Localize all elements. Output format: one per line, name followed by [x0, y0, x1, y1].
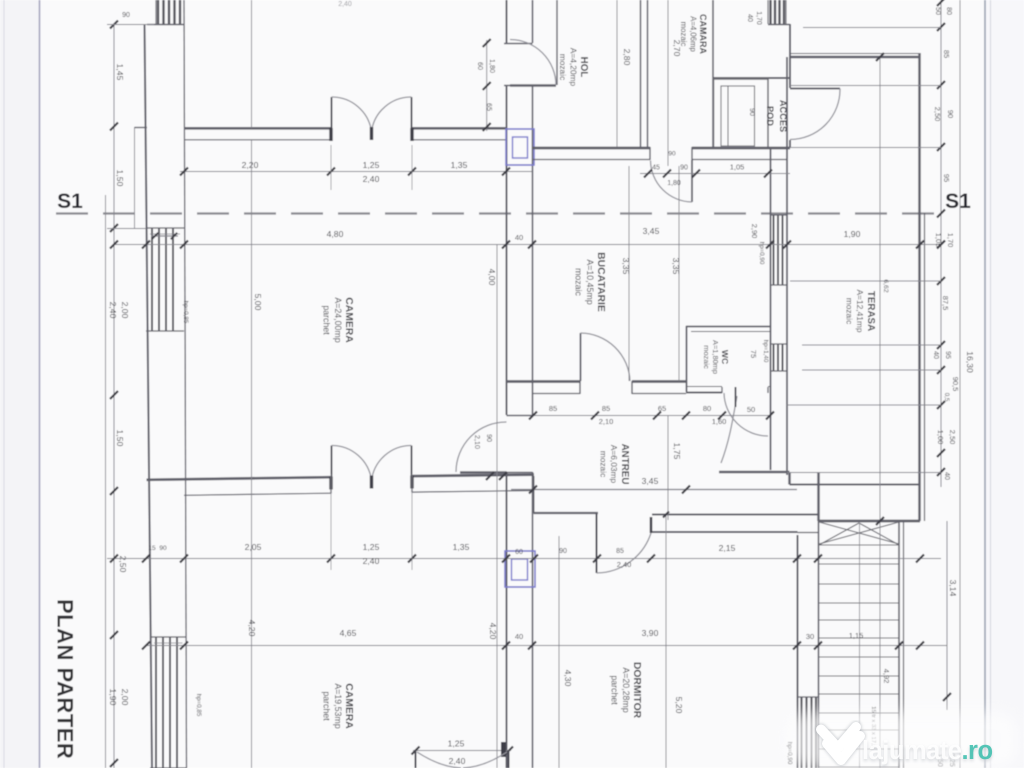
- svg-text:S1: S1: [945, 190, 971, 213]
- svg-text:POD: POD: [765, 106, 775, 126]
- svg-text:1,70: 1,70: [755, 11, 762, 25]
- svg-text:1,25: 1,25: [448, 739, 465, 749]
- svg-text:2,00: 2,00: [120, 302, 130, 319]
- svg-text:85: 85: [602, 404, 610, 413]
- svg-text:ANTREU: ANTREU: [619, 444, 630, 485]
- svg-text:2,40: 2,40: [617, 560, 632, 569]
- svg-text:1,90: 1,90: [844, 229, 861, 239]
- svg-text:A=6,03mp: A=6,03mp: [609, 445, 619, 484]
- svg-text:90: 90: [485, 434, 492, 442]
- svg-text:BUCATARIE: BUCATARIE: [595, 252, 606, 312]
- svg-text:WC: WC: [720, 350, 730, 364]
- svg-text:2,50: 2,50: [933, 107, 942, 122]
- svg-text:2,40: 2,40: [108, 302, 118, 319]
- svg-text:30: 30: [806, 632, 814, 641]
- svg-text:A=1,80mp: A=1,80mp: [711, 340, 720, 374]
- svg-text:mozaic: mozaic: [574, 268, 584, 296]
- svg-text:45: 45: [652, 165, 660, 172]
- svg-text:1,70: 1,70: [946, 233, 955, 248]
- svg-text:1,80: 1,80: [667, 180, 681, 187]
- svg-text:hp=0,85: hp=0,85: [182, 301, 189, 324]
- svg-text:90: 90: [946, 110, 955, 118]
- svg-text:A=24,00mp: A=24,00mp: [333, 297, 343, 342]
- svg-text:PLAN PARTER: PLAN PARTER: [53, 599, 78, 759]
- svg-text:3,45: 3,45: [643, 226, 660, 236]
- svg-text:DORMITOR: DORMITOR: [631, 662, 642, 719]
- svg-text:65: 65: [658, 404, 666, 413]
- svg-text:50: 50: [934, 7, 941, 15]
- svg-text:75: 75: [749, 350, 758, 358]
- svg-text:2,10: 2,10: [599, 417, 614, 426]
- svg-text:1,80: 1,80: [488, 59, 497, 73]
- svg-text:lajumate.ro: lajumate.ro: [862, 737, 993, 765]
- svg-text:hp=0,90: hp=0,90: [758, 242, 765, 265]
- svg-text:90,5: 90,5: [951, 377, 960, 392]
- svg-text:40: 40: [515, 632, 523, 641]
- svg-text:parchet: parchet: [322, 691, 332, 721]
- svg-text:A=4,06mp: A=4,06mp: [688, 16, 697, 52]
- svg-text:1,75: 1,75: [672, 443, 682, 460]
- svg-text:4,92: 4,92: [882, 669, 891, 684]
- svg-text:90: 90: [559, 548, 567, 555]
- svg-text:parchet: parchet: [322, 305, 332, 335]
- svg-text:95: 95: [944, 351, 951, 359]
- svg-text:60: 60: [515, 549, 523, 556]
- svg-text:A=10,45mp: A=10,45mp: [585, 259, 595, 304]
- svg-text:5,20: 5,20: [674, 697, 684, 714]
- svg-text:2,20: 2,20: [242, 160, 259, 170]
- svg-text:ACCES: ACCES: [778, 100, 788, 132]
- svg-text:1,50: 1,50: [115, 430, 125, 447]
- svg-text:TERASA: TERASA: [865, 291, 876, 331]
- svg-text:1,05: 1,05: [934, 233, 943, 248]
- svg-text:95: 95: [942, 174, 951, 182]
- svg-text:80: 80: [703, 404, 711, 413]
- svg-text:1,25: 1,25: [363, 160, 380, 170]
- svg-text:mozaic: mozaic: [702, 345, 711, 369]
- svg-text:hp=1,40: hp=1,40: [762, 340, 769, 363]
- svg-text:2,40: 2,40: [363, 556, 380, 566]
- svg-text:A=20,28mp: A=20,28mp: [621, 667, 631, 712]
- svg-text:85: 85: [549, 404, 557, 413]
- svg-text:1,25: 1,25: [363, 542, 380, 552]
- svg-text:1,35: 1,35: [451, 160, 468, 170]
- svg-text:A=19,53mp: A=19,53mp: [333, 683, 343, 728]
- svg-text:1,05: 1,05: [730, 163, 745, 172]
- svg-text:0,5: 0,5: [943, 393, 950, 402]
- svg-text:2,15: 2,15: [719, 543, 736, 553]
- svg-text:1,35: 1,35: [453, 542, 470, 552]
- svg-text:mozaic: mozaic: [844, 298, 854, 325]
- svg-text:50: 50: [747, 405, 755, 414]
- svg-text:2,70: 2,70: [672, 40, 682, 57]
- svg-text:4,20: 4,20: [488, 623, 498, 640]
- svg-text:85: 85: [942, 50, 951, 58]
- svg-text:60: 60: [476, 62, 485, 70]
- svg-text:3,35: 3,35: [671, 258, 681, 275]
- svg-text:A=4,20mp: A=4,20mp: [569, 48, 579, 87]
- svg-text:90: 90: [668, 151, 676, 158]
- svg-text:1,00: 1,00: [936, 430, 945, 445]
- svg-text:3,90: 3,90: [642, 628, 659, 638]
- svg-text:1,90: 1,90: [108, 689, 118, 706]
- svg-text:2,00: 2,00: [120, 689, 130, 706]
- svg-text:65: 65: [485, 103, 494, 111]
- svg-text:A=12,41mp: A=12,41mp: [855, 289, 865, 332]
- svg-text:1,45: 1,45: [115, 64, 125, 81]
- svg-text:CAMARA: CAMARA: [698, 14, 708, 54]
- svg-text:mozaic: mozaic: [558, 54, 568, 81]
- svg-text:16,30: 16,30: [965, 351, 975, 373]
- svg-text:40: 40: [746, 14, 753, 22]
- svg-text:90: 90: [159, 545, 167, 552]
- svg-text:40: 40: [515, 233, 523, 242]
- svg-text:CAMERA: CAMERA: [343, 297, 354, 343]
- svg-text:40: 40: [943, 472, 950, 480]
- svg-text:2,10: 2,10: [473, 435, 482, 449]
- svg-text:90: 90: [680, 165, 688, 172]
- svg-text:hp=0,85: hp=0,85: [195, 694, 202, 717]
- svg-text:2,80: 2,80: [622, 49, 632, 66]
- svg-text:2,05: 2,05: [245, 542, 262, 552]
- svg-text:3,45: 3,45: [642, 476, 659, 486]
- svg-text:4,80: 4,80: [327, 229, 344, 239]
- svg-text:4,65: 4,65: [340, 628, 357, 638]
- svg-text:1,50: 1,50: [115, 170, 125, 187]
- svg-text:HOL: HOL: [578, 57, 589, 78]
- svg-text:5,00: 5,00: [253, 294, 263, 311]
- svg-text:87,5: 87,5: [941, 296, 950, 311]
- svg-text:90: 90: [122, 12, 130, 19]
- svg-text:parchet: parchet: [610, 675, 620, 705]
- svg-text:CAMERA: CAMERA: [343, 683, 354, 729]
- svg-text:80: 80: [945, 7, 952, 15]
- svg-text:3,35: 3,35: [621, 258, 631, 275]
- svg-text:85: 85: [616, 548, 624, 555]
- svg-text:90: 90: [748, 108, 755, 116]
- svg-text:S1: S1: [57, 190, 83, 213]
- svg-text:mozaic: mozaic: [598, 451, 608, 478]
- svg-text:1,60: 1,60: [712, 417, 727, 426]
- svg-text:2,50: 2,50: [948, 430, 957, 445]
- svg-text:2,40: 2,40: [338, 1, 352, 8]
- svg-text:2,90: 2,90: [750, 224, 759, 239]
- svg-text:4,00: 4,00: [487, 269, 497, 286]
- svg-text:4,30: 4,30: [563, 670, 573, 687]
- svg-text:3,14: 3,14: [948, 580, 958, 597]
- svg-text:2,40: 2,40: [363, 174, 380, 184]
- svg-text:4,20: 4,20: [247, 620, 257, 637]
- svg-text:1,15: 1,15: [849, 631, 864, 640]
- svg-text:40: 40: [932, 351, 939, 359]
- svg-text:2,40: 2,40: [449, 756, 466, 766]
- svg-text:15: 15: [148, 545, 156, 552]
